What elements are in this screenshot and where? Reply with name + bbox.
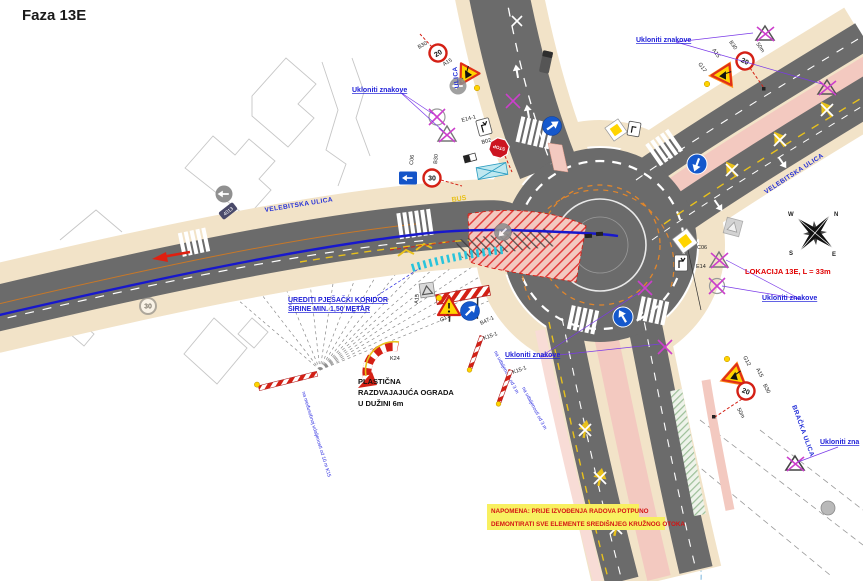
sign-code-b30-west: B30 [433, 154, 440, 164]
signs-to-remove-north [429, 109, 456, 142]
sign-code-c06: C06 [409, 155, 416, 166]
e14-sign-top [627, 121, 641, 137]
fence-note-3: U DUŽINI 6m [358, 399, 404, 408]
compass-n: N [834, 212, 838, 218]
portable-sign-board [419, 282, 435, 298]
street-name-southeast: BRAČKA ULICA [790, 404, 817, 458]
distance-50m-ne: 50m [754, 42, 765, 55]
mandatory-direction-sign-b47 [461, 302, 480, 321]
warning-lamp-icon [724, 356, 730, 362]
fence-note-2: RAZDVAJAJUĆA OGRADA [358, 388, 454, 397]
sign-code-b30: B30 [417, 41, 428, 51]
lane-direction-sign-c06 [399, 172, 417, 185]
k15-spacing-label: na međusobnoj udaljenosti od 10 m K15 [300, 391, 332, 478]
pedestrian-corridor-note-1: UREDITI PJEŠAČKI KORIDOR [288, 295, 388, 304]
remove-signs-note-s: Ukloniti znakove [505, 352, 560, 359]
sign-code-k24: K24 [390, 356, 400, 362]
speed-limit-30-sign: 30 [428, 176, 436, 183]
plan-drawing: BUS [0, 0, 863, 581]
remove-signs-note-e: Ukloniti znakove [762, 295, 817, 302]
sign-code-b47-1: B47-1 [479, 315, 495, 327]
sign-code-e14: E14 [696, 264, 706, 270]
compass-s: S [789, 251, 793, 257]
existing-pole-icon [821, 501, 835, 515]
page-title: Faza 13E [22, 7, 86, 24]
warning-lamp-icon [474, 85, 480, 91]
k15-1-pole-a [466, 335, 484, 373]
street-name-north: ULICA [452, 66, 461, 88]
sign-code-g17-ne: G17 [696, 62, 707, 74]
svg-text:30: 30 [144, 304, 152, 311]
distance-50m-s: 50m [735, 407, 746, 420]
note-line-2: DEMONTIRATI SVE ELEMENTE SREDIŠNJEG KRUŽ… [491, 519, 685, 528]
sign-code-g12: G12 [741, 355, 751, 367]
mandatory-down-sign [687, 154, 707, 174]
compass-e: E [832, 252, 836, 258]
k12-board [463, 153, 476, 163]
remove-signs-note-nw: Ukloniti znakove [352, 87, 407, 94]
existing-sign-on-island [495, 224, 512, 241]
compass-rose: W N S E [783, 201, 848, 266]
sign-code-a15-west: A15 [414, 294, 421, 304]
sign-code-b30-ne: B30 [727, 40, 738, 51]
sign-code-k15-1-b: K15-1 [512, 365, 528, 376]
mandatory-upleft-sign [613, 307, 633, 327]
pedestrian-corridor-note-2: ŠIRINE MIN. 1,50 METAR [288, 304, 370, 313]
sign-code-c06-east: C06 [697, 245, 707, 251]
sign-code-a15-s: A15 [754, 367, 764, 378]
existing-sign-grey-arrow-west [216, 186, 233, 203]
fence-note-1: PLASTIČNA [358, 377, 402, 386]
sign-code-b30-s: B30 [761, 383, 771, 394]
mandatory-right-sign [543, 117, 562, 136]
sign-code-k15-1-a: K15-1 [483, 331, 499, 342]
remove-signs-note-ne: Ukloniti znakove [636, 37, 691, 44]
sign-code-e14-1: E14-1 [461, 114, 477, 124]
remove-signs-note-se: Ukloniti zna [820, 439, 859, 446]
e14-sign [675, 255, 688, 271]
location-label: LOKACIJA 13E, L = 33m [745, 267, 831, 276]
warning-lamp-icon [704, 81, 710, 87]
signs-to-remove-south [786, 456, 804, 471]
k15-1-spacing-b: na udaljenosti od 3 m [520, 386, 548, 431]
warning-lamp-icon [436, 295, 442, 301]
existing-speed-30-sign: 30 [140, 298, 156, 314]
note-line-1: NAPOMENA: PRIJE IZVOĐENJA RADOVA POTPUNO [491, 508, 649, 515]
traffic-plan-page: BUS [0, 0, 863, 581]
compass-w: W [788, 212, 794, 218]
sign-cluster-south: 20 G12 A15 B30 50m [712, 355, 771, 420]
k15-barrier-pole-left [254, 367, 318, 391]
